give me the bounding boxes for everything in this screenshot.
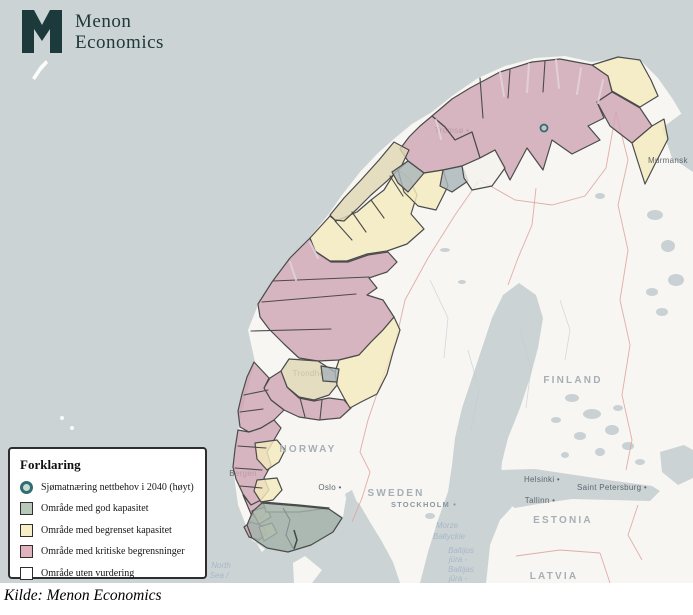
nettbehov-marker[interactable] [541,125,548,132]
menon-m-icon [22,10,62,53]
lake [458,280,466,284]
logo-text: Menon Economics [75,10,164,53]
legend-swatch-marker [20,481,33,494]
lake [647,210,663,220]
lake [595,193,605,199]
legend-item-label: Sjømatnæring nettbehov i 2040 (høyt) [41,482,194,493]
lake [656,308,668,316]
small-island [70,426,74,430]
lake [613,405,623,411]
legend-swatch-kritiske [20,545,33,558]
source-caption: Kilde: Menon Economics [4,587,162,605]
islet [461,505,464,507]
legend-swatch-uten [20,567,33,580]
lake [635,459,645,465]
legend-item: Område med kritiske begrensninger [20,545,197,559]
logo-line2: Economics [75,32,164,53]
legend-item: Område uten vurdering [20,566,197,580]
lake [583,409,601,419]
city-label: Tallinn • [525,496,555,505]
legend-item: Område med god kapasitet [20,502,197,516]
legend-item: Område med begrenset kapasitet [20,523,197,537]
legend: Forklaring Sjømatnæring nettbehov i 2040… [8,447,207,579]
lake [565,394,579,402]
legend-item-label: Område med begrenset kapasitet [41,525,172,536]
region-fjord-trondheim[interactable] [321,366,339,382]
islet [452,517,455,519]
lake [605,425,619,435]
sea-label: Morze [436,521,459,530]
sea-label: jūra - [448,574,468,583]
lake [574,432,586,440]
lake [595,448,605,456]
lake [425,513,435,519]
islet [455,512,458,514]
sea-label: North [211,561,231,570]
legend-swatch-begrenset [20,524,33,537]
city-label: Murmansk [648,156,688,165]
country-label: SWEDEN [367,488,424,499]
legend-item-label: Område uten vurdering [41,568,134,579]
city-label: Saint Petersburg • [577,483,647,492]
sea-label: Baltijos [448,546,474,555]
country-label: ESTONIA [533,515,593,526]
sea-label: Baltijas [448,565,474,574]
lake [646,288,658,296]
city-label: Helsinki • [524,475,560,484]
menon-logo: Menon Economics [22,10,164,53]
country-label: LATVIA [530,571,579,582]
sea-label: Bałtyckie [433,532,466,541]
lake [622,442,634,450]
logo-line1: Menon [75,11,164,32]
lake [551,417,561,423]
lake [561,452,569,458]
legend-item: Sjømatnæring nettbehov i 2040 (høyt) [20,480,197,494]
sea-label: jūra - [448,555,468,564]
legend-title: Forklaring [20,457,197,473]
city-label: Oslo • [318,483,341,492]
page: Tromsø •TrondheimBergenNORWAYSWEDENFINLA… [0,0,693,615]
legend-swatch-god [20,502,33,515]
sea-label: Sea / [210,571,229,580]
country-label: NORWAY [279,444,336,455]
country-label: FINLAND [543,375,602,386]
lake [661,240,675,252]
city-label: STOCKHOLM • [391,500,457,509]
legend-item-label: Område med kritiske begrensninger [41,546,185,557]
lake [440,248,450,252]
small-island [60,416,64,420]
lake [668,274,684,286]
legend-item-label: Område med god kapasitet [41,503,148,514]
